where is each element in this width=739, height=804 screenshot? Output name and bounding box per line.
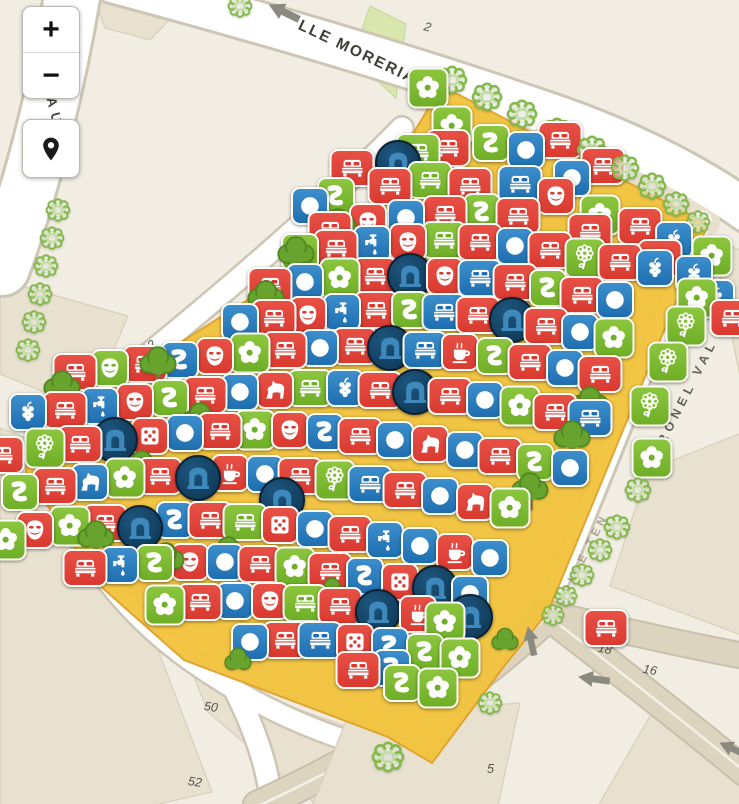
map-marker-circle[interactable] (231, 623, 269, 661)
monument-arch-icon (98, 423, 132, 457)
map-marker-flower[interactable] (230, 333, 271, 374)
map-marker-grapes[interactable] (636, 249, 674, 287)
map-marker-horse[interactable] (256, 371, 294, 409)
tap-icon (358, 230, 386, 258)
bed-icon (573, 404, 607, 432)
map-marker-circle[interactable] (421, 477, 459, 515)
flower-icon (495, 493, 525, 523)
bed-icon (565, 281, 599, 309)
circle-icon (406, 532, 434, 560)
map-marker-circle[interactable] (596, 281, 634, 319)
map-marker-flower[interactable] (418, 668, 459, 709)
map-marker-theater-mask[interactable] (537, 177, 575, 215)
squiggle-icon (351, 562, 379, 590)
bed-icon (543, 126, 577, 154)
horse-icon (461, 488, 489, 516)
circle-icon (551, 354, 579, 382)
bed-icon (323, 592, 357, 620)
map-marker-bed[interactable] (710, 299, 739, 337)
bed-icon (143, 462, 177, 490)
bed-icon (183, 588, 217, 616)
map-marker-daisy[interactable] (25, 428, 66, 469)
zoom-in-button[interactable]: + (23, 7, 79, 52)
squiggle-icon (388, 669, 416, 697)
bed-icon (373, 172, 407, 200)
grapes-icon (331, 374, 359, 402)
bed-icon (293, 374, 327, 402)
squiggle-icon (521, 448, 549, 476)
bed-icon (603, 248, 637, 276)
horse-icon (76, 468, 104, 496)
flower-icon (599, 323, 629, 353)
map-marker-circle[interactable] (466, 381, 504, 419)
squiggle-icon (468, 198, 496, 226)
flower-icon (637, 443, 667, 473)
circle-icon (291, 268, 319, 296)
bed-icon (188, 381, 222, 409)
map-marker-horse[interactable] (456, 483, 494, 521)
tap-icon (328, 298, 356, 326)
monument-arch-icon (123, 511, 157, 545)
squiggle-icon (396, 296, 424, 324)
squiggle-icon (286, 238, 314, 266)
map-marker-monument-arch[interactable] (175, 455, 221, 501)
flower-icon (235, 338, 265, 368)
map-marker-flower[interactable] (0, 520, 27, 561)
bed-icon (38, 472, 72, 500)
bed-icon (529, 312, 563, 340)
map-marker-daisy[interactable] (630, 386, 671, 427)
bed-icon (48, 396, 82, 424)
flower-icon (0, 525, 21, 555)
circle-icon (601, 286, 629, 314)
zoom-control: + − (22, 6, 80, 99)
squiggle-icon (141, 549, 169, 577)
squiggle-icon (481, 342, 509, 370)
bed-icon (589, 614, 623, 642)
map-marker-theater-mask[interactable] (271, 411, 309, 449)
bed-icon (341, 656, 375, 684)
map-marker-horse[interactable] (411, 425, 449, 463)
circle-icon (476, 544, 504, 572)
map-marker-circle[interactable] (401, 527, 439, 565)
bed-icon (313, 557, 347, 585)
map-marker-squiggle[interactable] (1, 473, 39, 511)
map-marker-daisy[interactable] (666, 306, 707, 347)
bed-icon (427, 226, 461, 254)
daisy-icon (30, 433, 60, 463)
flower-icon (110, 463, 140, 493)
dice-icon (136, 422, 164, 450)
bed-icon (501, 202, 535, 230)
map-marker-circle[interactable] (551, 449, 589, 487)
theater-mask-icon (294, 301, 322, 329)
squiggle-icon (161, 506, 189, 534)
coffee-icon (441, 538, 469, 566)
map-marker-bed[interactable] (0, 436, 25, 474)
daisy-icon (570, 243, 600, 273)
squiggle-icon (311, 418, 339, 446)
map-marker-bed[interactable] (198, 412, 243, 450)
map-marker-squiggle[interactable] (383, 664, 421, 702)
map-marker-circle[interactable] (471, 539, 509, 577)
map-marker-circle[interactable] (507, 131, 545, 169)
horse-icon (261, 376, 289, 404)
circle-icon (381, 426, 409, 454)
theater-mask-icon (256, 587, 284, 615)
bed-icon (268, 336, 302, 364)
bed-icon (253, 272, 287, 300)
map-marker-flower[interactable] (490, 488, 531, 529)
map-marker-bed[interactable] (336, 651, 381, 689)
theater-mask-icon (542, 182, 570, 210)
map-marker-circle[interactable] (376, 421, 414, 459)
bed-icon (58, 358, 92, 386)
theater-mask-icon (431, 262, 459, 290)
map-marker-flower[interactable] (594, 318, 635, 359)
bed-icon (513, 348, 547, 376)
flower-icon (150, 590, 180, 620)
daisy-icon (671, 311, 701, 341)
daisy-icon (653, 347, 683, 377)
bed-icon (583, 360, 617, 388)
bed-icon (303, 626, 337, 654)
bed-icon (388, 476, 422, 504)
bed-icon (533, 236, 567, 264)
map-marker-theater-mask[interactable] (196, 337, 234, 375)
circle-icon (301, 515, 329, 543)
map-marker-squiggle[interactable] (136, 544, 174, 582)
bed-icon (413, 166, 447, 194)
tap-icon (371, 526, 399, 554)
circle-icon (236, 628, 264, 656)
circle-icon (171, 419, 199, 447)
map-marker-squiggle[interactable] (151, 379, 189, 417)
bed-icon (408, 336, 442, 364)
tap-icon (86, 392, 114, 420)
flower-icon (325, 263, 355, 293)
map-marker-bed[interactable] (568, 399, 613, 437)
bed-icon (715, 304, 739, 332)
squiggle-icon (534, 274, 562, 302)
map-marker-theater-mask[interactable] (116, 383, 154, 421)
circle-icon (512, 136, 540, 164)
flower-icon (55, 511, 85, 541)
theater-mask-icon (394, 228, 422, 256)
monument-arch-icon (393, 259, 427, 293)
map-marker-coffee[interactable] (441, 333, 479, 371)
map-canvas[interactable]: LLE MORERIACESAR AUGUCORONEL VALCALLE TE… (0, 0, 739, 804)
map-marker-bed[interactable] (63, 549, 108, 587)
locate-button[interactable] (22, 119, 80, 178)
circle-icon (471, 386, 499, 414)
circle-icon (306, 334, 334, 362)
circle-icon (221, 587, 249, 615)
bed-icon (228, 508, 262, 536)
map-marker-bed[interactable] (584, 609, 629, 647)
map-marker-flower[interactable] (105, 458, 146, 499)
squiggle-icon (6, 478, 34, 506)
circle-icon (226, 378, 254, 406)
dice-icon (266, 511, 294, 539)
map-marker-bed[interactable] (33, 467, 78, 505)
map-marker-circle[interactable] (166, 414, 204, 452)
flower-icon (505, 391, 535, 421)
bed-icon (498, 268, 532, 296)
map-marker-squiggle[interactable] (472, 124, 510, 162)
bed-icon (128, 350, 162, 378)
coffee-icon (446, 338, 474, 366)
bed-icon (623, 212, 657, 240)
bed-icon (586, 152, 620, 180)
bed-icon (203, 417, 237, 445)
tap-icon (106, 551, 134, 579)
map-marker-dice[interactable] (261, 506, 299, 544)
map-marker-flower[interactable] (145, 585, 186, 626)
bed-icon (0, 441, 19, 469)
daisy-icon (320, 465, 350, 495)
map-marker-bed[interactable] (43, 391, 88, 429)
grapes-icon (641, 254, 669, 282)
circle-icon (211, 548, 239, 576)
bed-icon (63, 430, 97, 458)
zoom-out-button[interactable]: − (23, 53, 79, 98)
map-marker-bed[interactable] (53, 353, 98, 391)
bed-icon (343, 422, 377, 450)
circle-icon (501, 232, 529, 260)
squiggle-icon (166, 346, 194, 374)
bed-icon (243, 550, 277, 578)
map-marker-flower[interactable] (632, 438, 673, 479)
map-marker-grapes[interactable] (9, 393, 47, 431)
circle-icon (556, 454, 584, 482)
circle-icon (566, 318, 594, 346)
horse-icon (416, 430, 444, 458)
squiggle-icon (477, 129, 505, 157)
daisy-icon (635, 391, 665, 421)
squiggle-icon (156, 384, 184, 412)
map-marker-tap[interactable] (366, 521, 404, 559)
flower-icon (413, 73, 443, 103)
bed-icon (333, 520, 367, 548)
theater-mask-icon (96, 354, 124, 382)
location-pin-icon (37, 135, 65, 163)
bed-icon (68, 554, 102, 582)
map-marker-bed[interactable] (408, 161, 453, 199)
map-marker-flower[interactable] (408, 68, 449, 109)
flower-icon (240, 415, 270, 445)
circle-icon (426, 482, 454, 510)
theater-mask-icon (201, 342, 229, 370)
flower-icon (423, 673, 453, 703)
map-marker-daisy[interactable] (648, 342, 689, 383)
map-marker-theater-mask[interactable] (171, 543, 209, 581)
squiggle-icon (411, 638, 439, 666)
monument-arch-icon (181, 461, 215, 495)
bed-icon (463, 228, 497, 256)
theater-mask-icon (276, 416, 304, 444)
bed-icon (503, 170, 537, 198)
flower-icon (280, 552, 310, 582)
map-marker-bed[interactable] (123, 345, 168, 383)
map-marker-tap[interactable] (323, 293, 361, 331)
grapes-icon (14, 398, 42, 426)
bed-icon (257, 304, 291, 332)
bed-icon (433, 382, 467, 410)
bed-icon (359, 296, 393, 324)
bed-icon (483, 442, 517, 470)
map-marker-squiggle[interactable] (516, 443, 554, 481)
map-marker-bed[interactable] (578, 355, 623, 393)
map-marker-flower[interactable] (50, 506, 91, 547)
theater-mask-icon (121, 388, 149, 416)
theater-mask-icon (176, 548, 204, 576)
map-marker-bed[interactable] (183, 376, 228, 414)
circle-icon (451, 436, 479, 464)
